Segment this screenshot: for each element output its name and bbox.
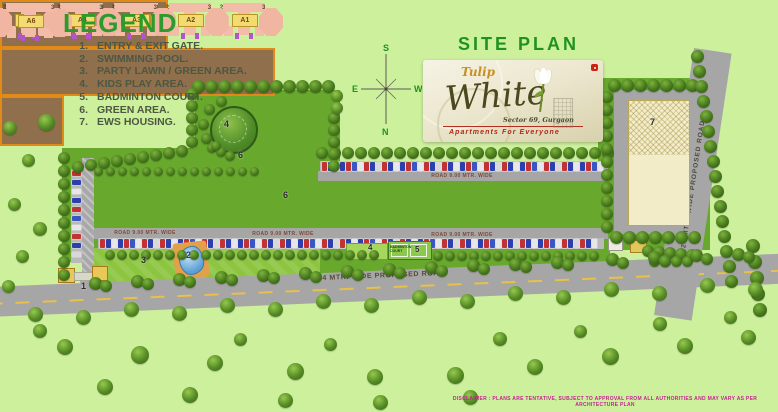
tree-icon	[478, 263, 490, 275]
road-label-bottom-1: ROAD 9.00 MTR. WIDE	[110, 230, 180, 236]
parked-car-icon	[208, 239, 213, 248]
parked-car-icon	[136, 239, 141, 248]
tree-icon	[601, 156, 613, 168]
parked-car-icon	[376, 162, 381, 171]
tree-icon	[106, 167, 115, 176]
tree-icon	[328, 124, 340, 136]
tree-icon	[234, 333, 247, 346]
disclaimer-text: DISCLAIMER : PLANS ARE TENTATIVE, SUBJEC…	[440, 396, 770, 408]
tree-icon	[94, 167, 103, 176]
tree-icon	[328, 148, 340, 160]
tree-icon	[58, 243, 70, 255]
tree-icon	[225, 151, 235, 161]
tree-icon	[309, 250, 319, 260]
road-label-bottom-3: ROAD 9.00 MTR. WIDE	[424, 232, 500, 238]
parked-car-icon	[358, 162, 363, 171]
tree-icon	[576, 147, 588, 159]
tree-icon	[604, 282, 619, 297]
tree-icon	[345, 250, 355, 260]
tree-icon	[563, 147, 575, 159]
compass-north: N	[382, 127, 389, 137]
tree-icon	[537, 147, 549, 159]
parked-car-icon	[574, 239, 579, 248]
legend-item-label: ENTRY & EXIT GATE.	[97, 40, 203, 53]
parked-car-icon	[532, 239, 537, 248]
tree-icon	[412, 290, 427, 305]
parked-car-icon	[286, 239, 291, 248]
developer-mark-icon	[591, 64, 598, 71]
parked-car-icon	[544, 239, 549, 248]
parked-car-icon	[544, 162, 549, 171]
tree-icon	[283, 80, 296, 93]
tree-icon	[72, 161, 84, 173]
tree-icon	[352, 269, 364, 281]
parked-car-icon	[574, 162, 579, 171]
legend-item: 6.GREEN AREA.	[72, 104, 247, 117]
parked-car-icon	[508, 162, 513, 171]
tree-icon	[105, 250, 115, 260]
compass-rose: S N E W	[352, 42, 422, 137]
tree-icon	[485, 147, 497, 159]
tree-icon	[498, 147, 510, 159]
tree-icon	[117, 250, 127, 260]
parked-car-icon	[406, 162, 411, 171]
parked-car-icon	[502, 239, 507, 248]
tree-icon	[124, 153, 136, 165]
parked-car-icon	[340, 239, 345, 248]
parked-car-icon	[580, 162, 585, 171]
tree-icon	[58, 165, 70, 177]
legend-item-label: EWS HOUSING.	[97, 116, 176, 129]
legend-item-label: PARTY LAWN / GREEN AREA.	[97, 65, 247, 78]
tree-icon	[677, 338, 693, 354]
tree-icon	[285, 250, 295, 260]
parked-car-icon	[292, 239, 297, 248]
tree-icon	[589, 251, 599, 261]
legend-item-number: 2.	[72, 53, 88, 66]
parked-car-icon	[112, 239, 117, 248]
parked-car-icon	[72, 252, 81, 257]
tree-icon	[373, 395, 388, 410]
parked-car-icon	[514, 162, 519, 171]
parked-car-icon	[256, 239, 261, 248]
parked-car-icon	[526, 162, 531, 171]
tree-icon	[201, 133, 212, 144]
tree-icon	[207, 355, 223, 371]
tree-icon	[723, 260, 736, 273]
tree-icon	[225, 250, 235, 260]
tree-icon	[691, 50, 704, 63]
parked-car-icon	[424, 162, 429, 171]
tree-icon	[457, 251, 467, 261]
tree-icon	[249, 250, 259, 260]
parked-car-icon	[72, 189, 81, 194]
tree-icon	[617, 257, 629, 269]
tree-icon	[268, 302, 283, 317]
tree-icon	[716, 215, 729, 228]
parked-car-icon	[244, 239, 249, 248]
tree-icon	[324, 338, 337, 351]
tree-icon	[436, 265, 448, 277]
tree-icon	[176, 145, 188, 157]
tree-icon	[508, 286, 523, 301]
tree-icon	[407, 147, 419, 159]
parked-car-icon	[346, 162, 351, 171]
tree-icon	[381, 147, 393, 159]
tree-icon	[714, 200, 727, 213]
tree-icon	[357, 250, 367, 260]
tree-icon	[748, 282, 763, 297]
legend-item-label: BADMINTON COURT.	[97, 91, 203, 104]
parked-car-icon	[466, 239, 471, 248]
compass-west: W	[414, 84, 422, 94]
parked-car-icon	[502, 162, 507, 171]
parked-car-icon	[118, 239, 123, 248]
tree-icon	[226, 167, 235, 176]
parked-car-icon	[250, 239, 255, 248]
parked-car-icon	[442, 162, 447, 171]
tree-icon	[460, 294, 475, 309]
parked-car-icon	[382, 162, 387, 171]
tree-icon	[331, 102, 343, 114]
ews-plot-hatch	[629, 101, 689, 155]
tree-icon	[58, 230, 70, 242]
tree-icon	[270, 80, 283, 93]
tree-icon	[261, 250, 271, 260]
tree-icon	[130, 167, 139, 176]
parked-car-icon	[310, 239, 315, 248]
tree-icon	[202, 167, 211, 176]
tree-icon	[58, 269, 70, 281]
tree-icon	[368, 147, 380, 159]
tree-icon	[201, 250, 211, 260]
parked-car-icon	[562, 239, 567, 248]
parked-car-icon	[592, 239, 597, 248]
tree-icon	[420, 147, 432, 159]
parked-car-icon	[562, 162, 567, 171]
parked-car-icon	[352, 162, 357, 171]
parked-car-icon	[538, 162, 543, 171]
marker-badminton: 5	[415, 245, 419, 254]
tree-icon	[556, 290, 571, 305]
legend-item: 3.PARTY LAWN / GREEN AREA.	[72, 65, 247, 78]
tree-icon	[724, 311, 737, 324]
tree-icon	[213, 250, 223, 260]
tree-icon	[297, 250, 307, 260]
tree-icon	[688, 231, 701, 244]
parked-car-icon	[418, 162, 423, 171]
parked-car-icon	[466, 162, 471, 171]
tree-icon	[97, 379, 113, 395]
tree-icon	[364, 298, 379, 313]
tree-icon	[673, 79, 686, 92]
parked-car-icon	[322, 239, 327, 248]
parked-car-icon	[370, 162, 375, 171]
legend-item: 7.EWS HOUSING.	[72, 116, 247, 129]
tree-icon	[577, 251, 587, 261]
parked-car-icon	[556, 162, 561, 171]
parked-car-icon	[478, 239, 483, 248]
tree-icon	[481, 251, 491, 261]
tree-icon	[257, 80, 270, 93]
tree-icon	[316, 294, 331, 309]
tree-icon	[33, 222, 47, 236]
tree-icon	[601, 195, 613, 207]
parked-car-icon	[238, 239, 243, 248]
tree-icon	[394, 267, 406, 279]
tree-icon	[447, 367, 464, 384]
marker-entry-gate: 1	[81, 281, 86, 291]
tree-icon	[602, 348, 619, 365]
tree-icon	[601, 143, 613, 155]
tree-icon	[58, 204, 70, 216]
tree-icon	[172, 306, 187, 321]
marker-party-lawn: 3	[141, 255, 146, 265]
parked-car-icon	[550, 162, 555, 171]
tree-icon	[660, 79, 673, 92]
parked-car-icon	[586, 162, 591, 171]
tree-icon	[662, 231, 675, 244]
internal-road-left	[82, 158, 94, 278]
parked-car-icon	[520, 162, 525, 171]
parked-car-icon	[436, 162, 441, 171]
tree-icon	[709, 170, 722, 183]
parked-car-icon	[586, 239, 591, 248]
tree-icon	[296, 80, 309, 93]
tree-icon	[328, 136, 340, 148]
tree-icon	[671, 256, 682, 267]
parked-car-icon	[400, 162, 405, 171]
legend-item-number: 4.	[72, 78, 88, 91]
marker-kids-play-lower: 4	[368, 243, 372, 252]
parked-car-icon	[514, 239, 519, 248]
parked-car-icon	[538, 239, 543, 248]
tree-icon	[238, 167, 247, 176]
logo-tagline: Apartments For Everyone	[449, 129, 560, 136]
tree-icon	[166, 167, 175, 176]
legend-list: 1.ENTRY & EXIT GATE.2.SWIMMING POOL.3.PA…	[72, 40, 247, 129]
parked-car-icon	[268, 239, 273, 248]
tree-icon	[647, 79, 660, 92]
tree-icon	[445, 251, 455, 261]
tree-icon	[250, 167, 259, 176]
parked-car-icon	[226, 239, 231, 248]
legend-title: LEGEND	[63, 8, 177, 39]
parked-car-icon	[72, 225, 81, 230]
parked-car-icon	[72, 207, 81, 212]
parked-car-icon	[460, 162, 465, 171]
parked-car-icon	[154, 239, 159, 248]
parked-car-icon	[568, 162, 573, 171]
parked-car-icon	[508, 239, 513, 248]
tree-icon	[608, 79, 621, 92]
parked-car-icon	[472, 162, 477, 171]
parked-car-icon	[490, 239, 495, 248]
tree-icon	[129, 250, 139, 260]
building-sketch-icon	[553, 98, 573, 128]
parked-car-icon	[316, 239, 321, 248]
marker-ews: 7	[650, 117, 655, 127]
tree-icon	[725, 275, 738, 288]
parked-car-icon	[280, 239, 285, 248]
tree-icon	[211, 141, 221, 151]
parked-car-icon	[454, 162, 459, 171]
tree-icon	[493, 251, 503, 261]
tree-icon	[529, 251, 539, 261]
legend-item-label: KIDS PLAY AREA.	[97, 78, 187, 91]
tree-icon	[446, 147, 458, 159]
tree-icon	[601, 182, 613, 194]
tree-icon	[58, 217, 70, 229]
tree-icon	[367, 369, 383, 385]
tree-icon	[165, 250, 175, 260]
legend-item-label: SWIMMING POOL.	[97, 53, 189, 66]
parked-car-icon	[448, 162, 453, 171]
parked-car-icon	[442, 239, 447, 248]
parked-car-icon	[436, 239, 441, 248]
parked-car-icon	[304, 239, 309, 248]
tree-icon	[178, 167, 187, 176]
tree-icon	[8, 198, 21, 211]
tree-icon	[659, 255, 671, 267]
parked-car-icon	[388, 162, 393, 171]
site-plan-page: 24 MTR. WIDE PROPOSED ROAD 24 MTR. WIDE …	[0, 0, 778, 412]
parked-car-icon	[430, 162, 435, 171]
parked-car-icon	[580, 239, 585, 248]
tree-icon	[741, 330, 756, 345]
legend-item: 2.SWIMMING POOL.	[72, 53, 247, 66]
tree-icon	[527, 359, 543, 375]
legend-item-number: 6.	[72, 104, 88, 117]
tree-icon	[743, 251, 755, 263]
tree-icon	[707, 155, 720, 168]
tree-icon	[623, 231, 636, 244]
tree-icon	[2, 280, 15, 293]
tree-icon	[321, 250, 331, 260]
parked-car-icon	[496, 162, 501, 171]
parked-car-icon	[328, 239, 333, 248]
tree-icon	[649, 231, 662, 244]
tree-icon	[182, 387, 198, 403]
tree-icon	[702, 125, 715, 138]
parked-car-icon	[556, 239, 561, 248]
tree-icon	[601, 208, 613, 220]
parked-car-icon	[72, 198, 81, 203]
road-label-top: ROAD 9.00 MTR. WIDE	[392, 173, 532, 179]
tree-icon	[111, 155, 123, 167]
tree-icon	[493, 332, 507, 346]
parked-car-icon	[298, 239, 303, 248]
page-title: SITE PLAN	[458, 34, 579, 55]
tree-icon	[541, 251, 551, 261]
tree-icon	[333, 250, 343, 260]
parked-car-icon	[568, 239, 573, 248]
tree-icon	[331, 90, 343, 102]
tree-icon	[459, 147, 471, 159]
tree-icon	[58, 152, 70, 164]
parked-car-icon	[232, 239, 237, 248]
legend-item-label: GREEN AREA.	[97, 104, 170, 117]
tree-icon	[142, 278, 154, 290]
parked-car-icon	[592, 162, 597, 171]
parked-car-icon	[532, 162, 537, 171]
tree-icon	[220, 298, 235, 313]
tree-icon	[142, 167, 151, 176]
tree-icon	[58, 178, 70, 190]
tree-icon	[190, 167, 199, 176]
parked-car-icon	[220, 239, 225, 248]
tree-icon	[524, 147, 536, 159]
parked-car-icon	[100, 239, 105, 248]
parked-car-icon	[520, 239, 525, 248]
tree-icon	[621, 79, 634, 92]
tree-icon	[433, 251, 443, 261]
tree-icon	[316, 147, 328, 159]
tree-icon	[237, 250, 247, 260]
legend-item-number: 1.	[72, 40, 88, 53]
tree-icon	[704, 140, 717, 153]
tree-icon	[601, 221, 613, 233]
legend-item-number: 5.	[72, 91, 88, 104]
tree-icon	[287, 363, 304, 380]
badminton-court-label: BADMINTON COURT	[390, 245, 416, 253]
tree-icon	[22, 154, 35, 167]
parked-car-icon	[364, 162, 369, 171]
tree-icon	[3, 121, 17, 135]
tree-icon	[154, 167, 163, 176]
tree-icon	[589, 147, 601, 159]
parked-car-icon	[340, 162, 345, 171]
tree-icon	[28, 307, 43, 322]
parked-car-icon	[478, 162, 483, 171]
road-label-bottom-2: ROAD 9.00 MTR. WIDE	[246, 231, 320, 237]
tree-icon	[100, 280, 112, 292]
parked-car-icon	[214, 239, 219, 248]
parked-car-icon	[166, 239, 171, 248]
legend-item: 5.BADMINTON COURT.	[72, 91, 247, 104]
parked-car-icon	[148, 239, 153, 248]
parked-car-icon	[490, 162, 495, 171]
parked-car-icon	[124, 239, 129, 248]
parked-car-icon	[412, 162, 417, 171]
tree-icon	[472, 147, 484, 159]
tree-icon	[520, 261, 532, 273]
parked-car-icon	[142, 239, 147, 248]
tree-icon	[137, 151, 149, 163]
tree-icon	[150, 149, 162, 161]
parked-car-icon	[72, 180, 81, 185]
tree-icon	[701, 253, 713, 265]
tree-icon	[342, 147, 354, 159]
tree-icon	[16, 250, 29, 263]
tree-icon	[124, 302, 139, 317]
legend-item-number: 3.	[72, 65, 88, 78]
tree-icon	[511, 147, 523, 159]
parked-car-icon	[496, 239, 501, 248]
tree-icon	[636, 231, 649, 244]
tree-icon	[153, 250, 163, 260]
tree-icon	[131, 346, 149, 364]
parked-car-icon	[130, 239, 135, 248]
tree-icon	[697, 95, 710, 108]
tree-icon	[186, 136, 198, 148]
tree-icon	[278, 393, 293, 408]
tree-icon	[700, 278, 715, 293]
tree-icon	[601, 169, 613, 181]
legend-item: 1.ENTRY & EXIT GATE.	[72, 40, 247, 53]
tree-icon	[711, 185, 724, 198]
badminton-court: BADMINTON COURT	[388, 241, 432, 260]
